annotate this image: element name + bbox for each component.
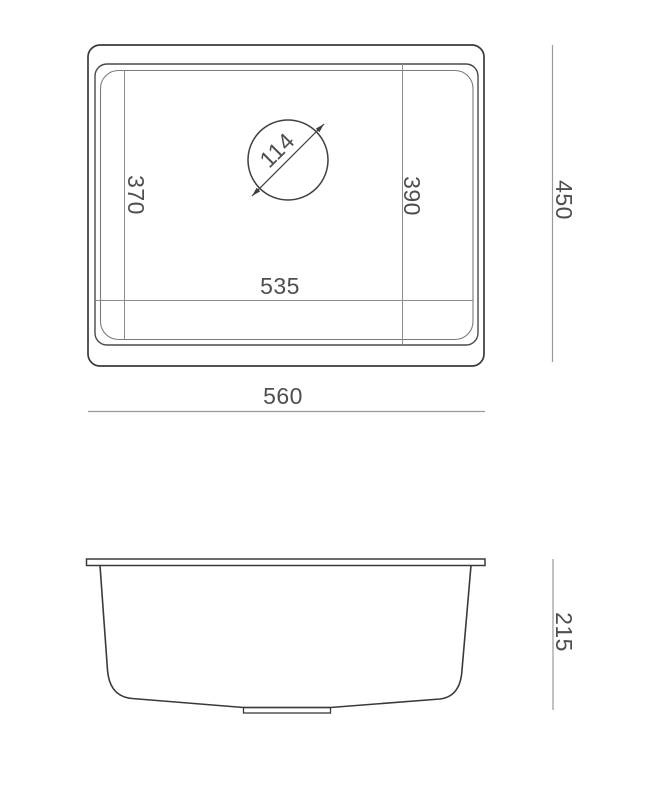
dim-label-bowl-width-left: 370 xyxy=(123,175,149,215)
sink-technical-drawing: 114 370 390 535 450 560 215 xyxy=(0,0,646,800)
dim-label-height: 215 xyxy=(551,612,577,652)
side-view: 215 xyxy=(87,559,578,713)
side-view-rim xyxy=(87,559,486,566)
side-view-body xyxy=(100,566,471,708)
dim-label-overall-depth: 450 xyxy=(551,180,577,220)
side-view-drain-tab xyxy=(244,708,331,714)
dim-label-bowl-width-right: 390 xyxy=(399,176,425,216)
drawing-canvas: 114 370 390 535 450 560 215 xyxy=(0,0,646,800)
dim-label-overall-width: 560 xyxy=(263,383,303,409)
dim-label-drain-diameter: 114 xyxy=(254,127,299,172)
top-view: 114 370 390 535 450 560 xyxy=(88,45,577,412)
dim-label-bowl-length: 535 xyxy=(260,273,300,299)
